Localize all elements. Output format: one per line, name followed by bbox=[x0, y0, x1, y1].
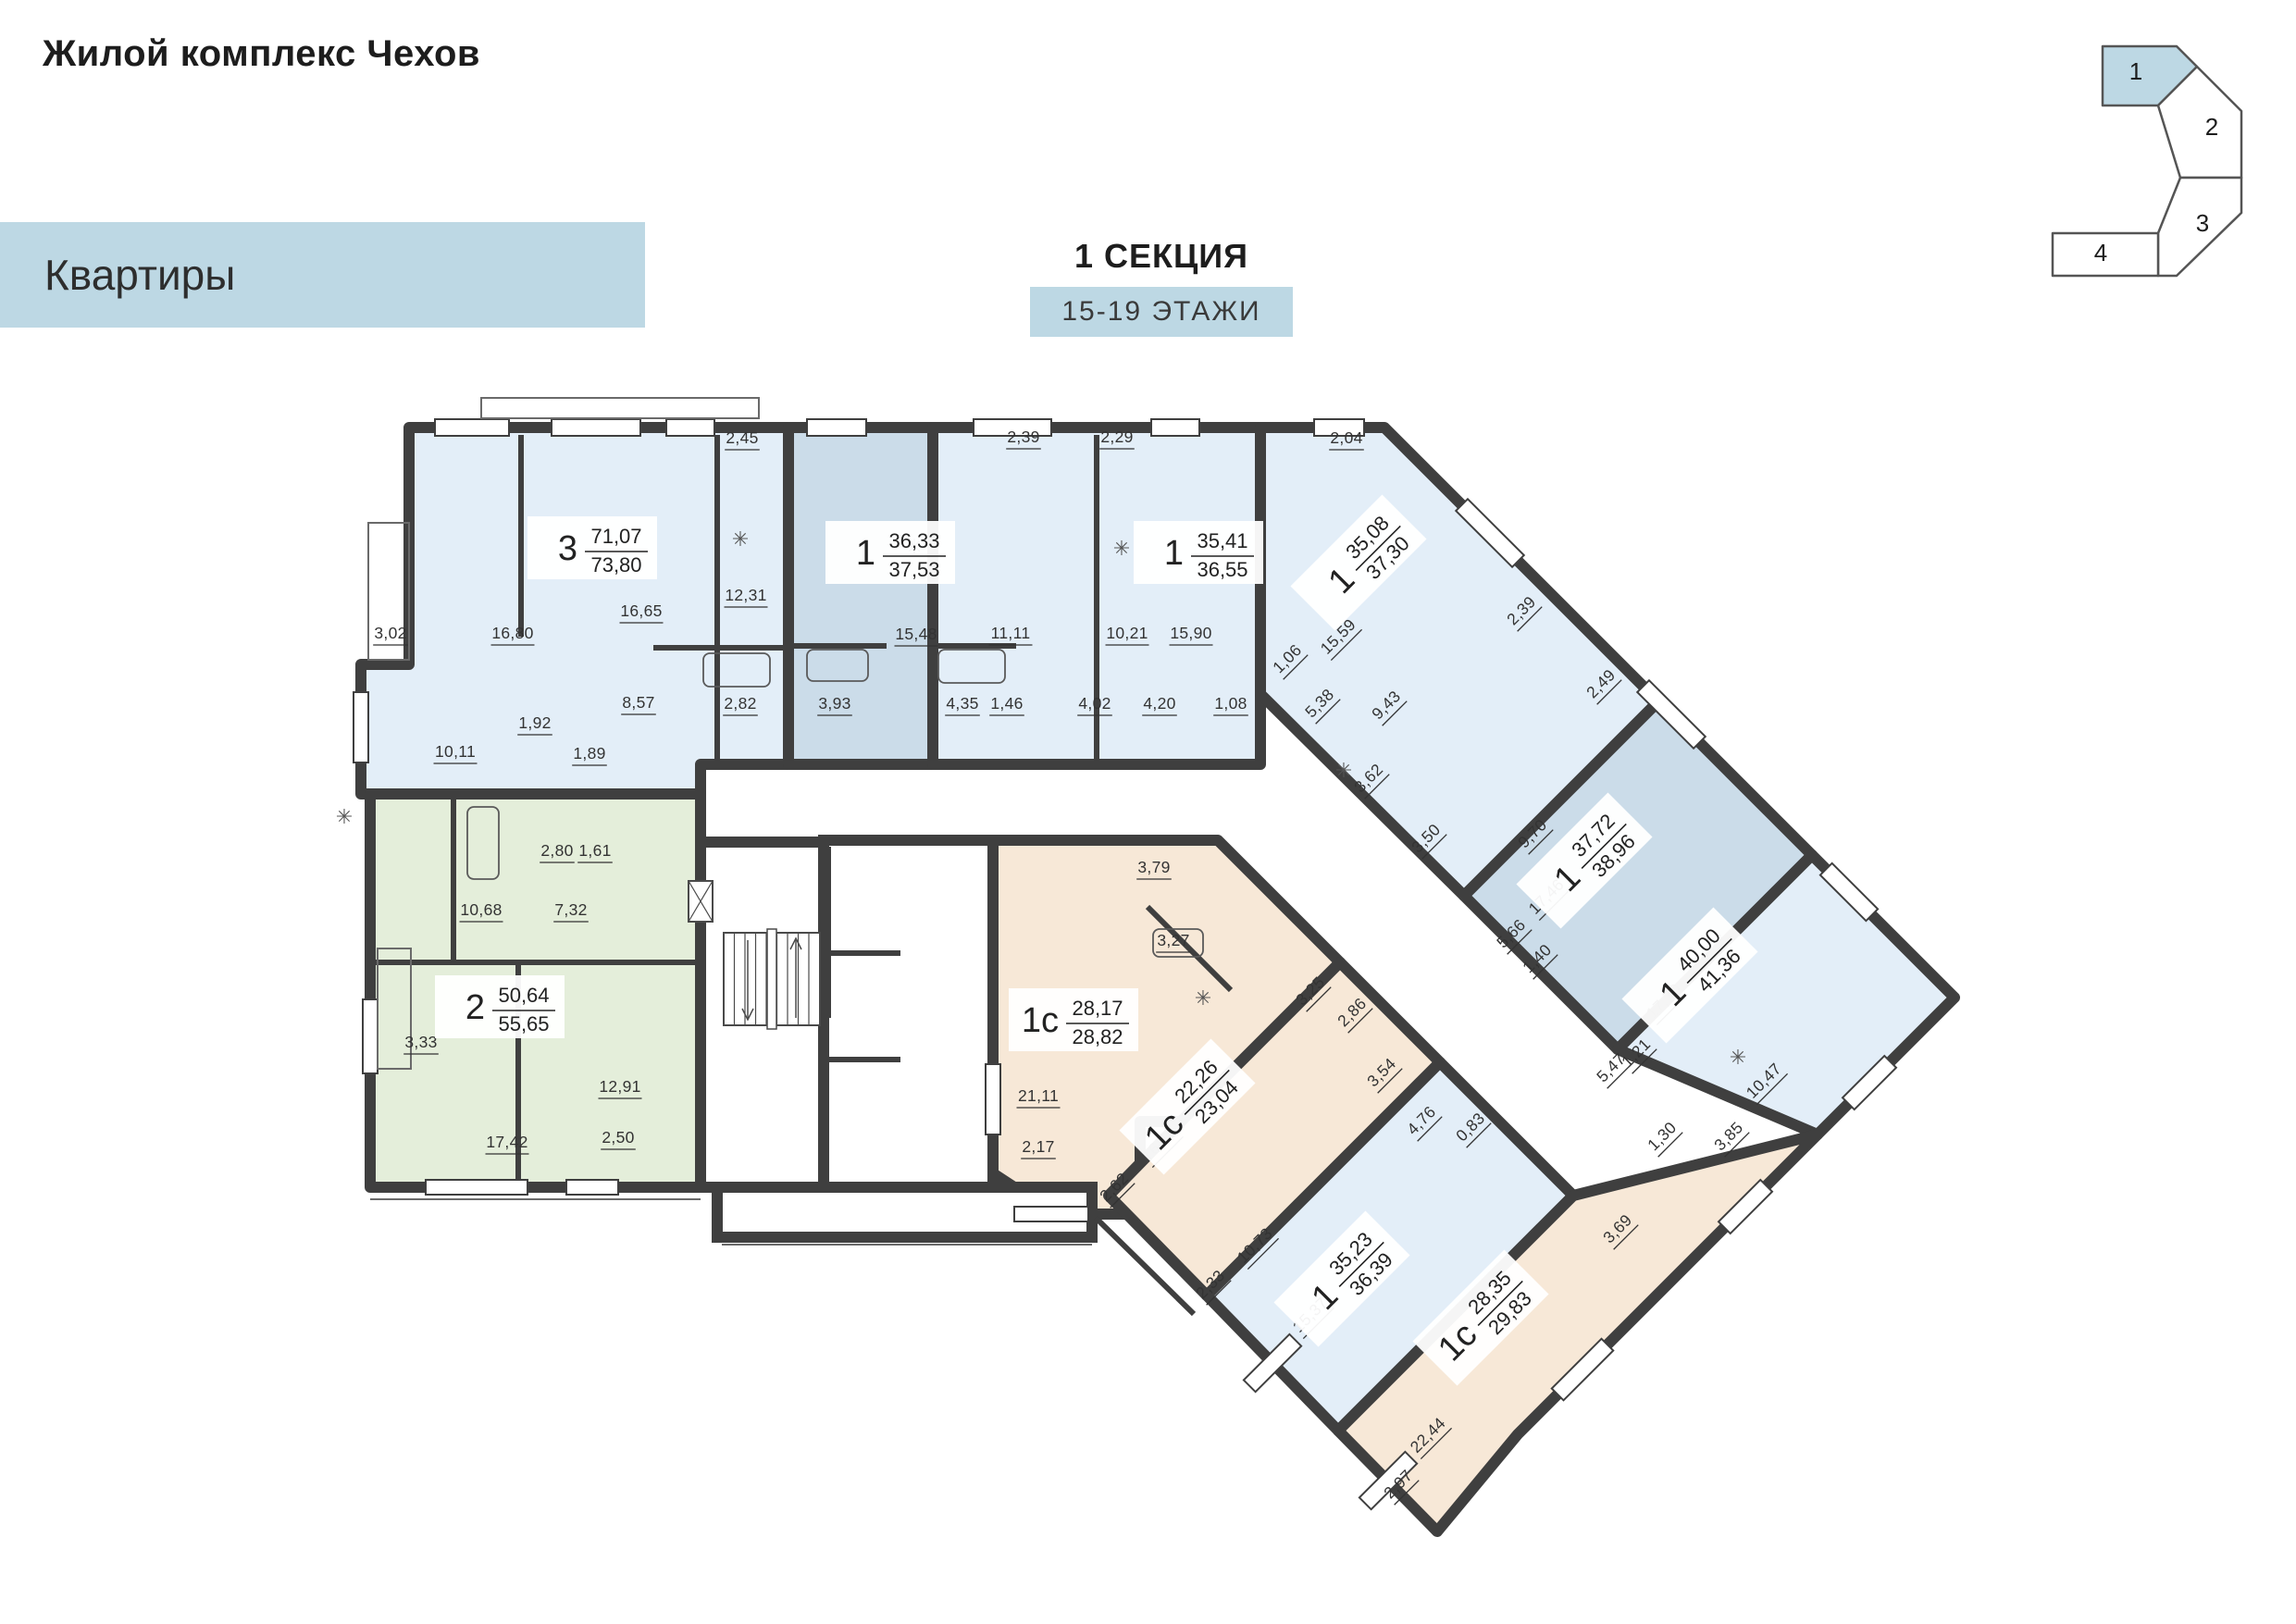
stair-divider bbox=[767, 929, 776, 1029]
dimension-label: 3,27 bbox=[1156, 931, 1191, 952]
svg-text:12,91: 12,91 bbox=[599, 1077, 640, 1096]
dimension-label: 4,02 bbox=[1077, 694, 1112, 715]
dimension-label: 2,45 bbox=[725, 428, 760, 450]
svg-text:2,82: 2,82 bbox=[724, 694, 756, 713]
svg-text:3,02: 3,02 bbox=[374, 624, 406, 642]
dimension-label: 3,33 bbox=[403, 1033, 439, 1054]
svg-text:10,11: 10,11 bbox=[435, 742, 476, 761]
dimension-label: 1,89 bbox=[572, 744, 607, 765]
apartment-area-total: 28,82 bbox=[1072, 1025, 1123, 1048]
svg-text:2,29: 2,29 bbox=[1100, 428, 1133, 446]
dimension-label: 4,20 bbox=[1142, 694, 1177, 715]
window bbox=[666, 419, 714, 436]
svg-text:10,68: 10,68 bbox=[460, 900, 502, 919]
apartment-type: 2 bbox=[465, 988, 485, 1027]
window bbox=[435, 419, 509, 436]
svg-text:2,17: 2,17 bbox=[1022, 1137, 1054, 1156]
window bbox=[426, 1180, 527, 1195]
apartment-area-living: 28,17 bbox=[1072, 997, 1123, 1020]
floor-plan-page: Жилой комплекс Чехов Квартиры 1 СЕКЦИЯ 1… bbox=[0, 0, 2296, 1624]
dimension-label: 1,46 bbox=[989, 694, 1024, 715]
svg-text:1,89: 1,89 bbox=[573, 744, 605, 762]
stove-icon: ✳ bbox=[1113, 537, 1130, 560]
apartment-3-71[interactable] bbox=[361, 428, 788, 794]
svg-text:4,35: 4,35 bbox=[946, 694, 978, 713]
dimension-label: 1,08 bbox=[1213, 694, 1248, 715]
dimension-label: 11,11 bbox=[989, 624, 1033, 645]
minimap-section-number: 1 bbox=[2129, 57, 2142, 85]
apartment-type: 1 bbox=[1164, 534, 1184, 573]
apartment-area-total: 36,55 bbox=[1197, 558, 1247, 581]
svg-text:15,48: 15,48 bbox=[895, 625, 937, 643]
svg-text:2,04: 2,04 bbox=[1330, 428, 1362, 447]
apartment-label-1-3541[interactable]: 135,4136,55 bbox=[1134, 521, 1263, 584]
dimension-label: 10,21 bbox=[1106, 624, 1149, 645]
dimension-label: 2,39 bbox=[1006, 428, 1041, 449]
svg-text:2,45: 2,45 bbox=[726, 428, 758, 447]
dimension-label: 17,42 bbox=[486, 1133, 529, 1154]
dimension-label: 2,82 bbox=[723, 694, 758, 715]
svg-text:17,42: 17,42 bbox=[486, 1133, 527, 1151]
svg-text:1,92: 1,92 bbox=[518, 713, 551, 732]
dimension-label: 8,57 bbox=[621, 693, 656, 714]
svg-text:21,11: 21,11 bbox=[1018, 1086, 1059, 1105]
svg-text:1,61: 1,61 bbox=[578, 841, 611, 860]
dimension-label: 15,48 bbox=[895, 625, 938, 646]
svg-text:1,30: 1,30 bbox=[1644, 1118, 1680, 1154]
dimension-label: 2,29 bbox=[1099, 428, 1135, 449]
svg-text:2,80: 2,80 bbox=[540, 841, 573, 860]
dimension-label: 2,04 bbox=[1329, 428, 1364, 450]
core-block bbox=[824, 840, 993, 1187]
apartment-area-total: 37,53 bbox=[888, 558, 939, 581]
dimension-label: 1,92 bbox=[517, 713, 552, 735]
stove-icon: ✳ bbox=[336, 805, 353, 828]
minimap-section-number: 3 bbox=[2196, 209, 2209, 237]
dimension-label: 2,80 bbox=[540, 841, 575, 862]
svg-text:15,90: 15,90 bbox=[1170, 624, 1211, 642]
dimension-label: 10,11 bbox=[434, 742, 478, 763]
dimension-label: 16,65 bbox=[620, 601, 664, 623]
svg-text:3,79: 3,79 bbox=[1137, 858, 1170, 876]
window bbox=[1151, 419, 1199, 436]
stove-icon: ✳ bbox=[732, 527, 749, 551]
minimap-section-number: 2 bbox=[2205, 113, 2218, 141]
svg-text:7,32: 7,32 bbox=[554, 900, 587, 919]
dimension-label: 1,30 bbox=[1643, 1117, 1682, 1157]
dimension-label: 1,61 bbox=[577, 841, 613, 862]
dimension-label: 12,31 bbox=[725, 586, 768, 607]
svg-text:1,46: 1,46 bbox=[990, 694, 1023, 713]
window bbox=[354, 692, 368, 762]
apartment-label-2-5064[interactable]: 250,6455,65 bbox=[435, 975, 565, 1038]
balcony bbox=[481, 398, 759, 418]
dimension-label: 3,93 bbox=[817, 694, 852, 715]
window bbox=[807, 419, 866, 436]
apartment-area-living: 71,07 bbox=[590, 525, 641, 548]
svg-text:1,08: 1,08 bbox=[1214, 694, 1247, 713]
apartment-type: 1 bbox=[856, 534, 875, 573]
dimension-label: 3,79 bbox=[1136, 858, 1172, 879]
stove-icon: ✳ bbox=[1335, 759, 1352, 782]
svg-text:2,50: 2,50 bbox=[602, 1128, 634, 1147]
minimap-section-number: 4 bbox=[2094, 239, 2107, 267]
svg-text:10,21: 10,21 bbox=[1106, 624, 1148, 642]
dimension-label: 3,02 bbox=[373, 624, 408, 645]
dimension-label: 2,17 bbox=[1021, 1137, 1056, 1159]
svg-text:16,65: 16,65 bbox=[620, 601, 662, 620]
window bbox=[1014, 1207, 1088, 1221]
apartment-1-3633[interactable] bbox=[788, 428, 933, 764]
window bbox=[363, 999, 378, 1073]
dimension-label: 21,11 bbox=[1017, 1086, 1061, 1108]
apartment-label-1c-2817[interactable]: 1с28,1728,82 bbox=[1009, 988, 1138, 1051]
apartment-area-total: 73,80 bbox=[590, 553, 641, 576]
apartment-type: 1с bbox=[1022, 1001, 1059, 1040]
stove-icon: ✳ bbox=[1195, 986, 1211, 1010]
dimension-label: 4,35 bbox=[945, 694, 980, 715]
dimension-label: 2,50 bbox=[601, 1128, 636, 1149]
dimension-label: 12,91 bbox=[599, 1077, 642, 1098]
window bbox=[986, 1064, 1000, 1134]
apartment-area-total: 55,65 bbox=[498, 1012, 549, 1035]
svg-text:4,02: 4,02 bbox=[1078, 694, 1111, 713]
svg-text:3,33: 3,33 bbox=[404, 1033, 437, 1051]
svg-text:12,31: 12,31 bbox=[725, 586, 766, 604]
svg-text:3,27: 3,27 bbox=[1157, 931, 1189, 949]
svg-text:11,11: 11,11 bbox=[991, 624, 1031, 642]
apartment-label-1-3633[interactable]: 136,3337,53 bbox=[825, 521, 955, 584]
svg-text:2,39: 2,39 bbox=[1007, 428, 1039, 446]
svg-text:16,80: 16,80 bbox=[491, 624, 533, 642]
dimension-label: 16,80 bbox=[491, 624, 535, 645]
stove-icon: ✳ bbox=[1730, 1046, 1746, 1069]
window bbox=[552, 419, 640, 436]
apartment-type: 3 bbox=[558, 529, 577, 568]
apartment-label-3-71[interactable]: 371,0773,80 bbox=[527, 516, 657, 579]
window bbox=[566, 1180, 618, 1195]
svg-text:4,20: 4,20 bbox=[1143, 694, 1175, 713]
apartment-area-living: 50,64 bbox=[498, 984, 549, 1007]
apartment-area-living: 36,33 bbox=[888, 529, 939, 552]
building-minimap: 1234 bbox=[2053, 46, 2241, 276]
svg-text:3,93: 3,93 bbox=[818, 694, 850, 713]
dimension-label: 7,32 bbox=[553, 900, 589, 922]
svg-text:8,57: 8,57 bbox=[622, 693, 654, 712]
apartment-area-living: 35,41 bbox=[1197, 529, 1247, 552]
dimension-label: 10,68 bbox=[460, 900, 503, 922]
dimension-label: 15,90 bbox=[1170, 624, 1213, 645]
floor-plan-svg: ✳✳✳✳✳✳✳ 2,453,0216,8016,6512,318,571,922… bbox=[0, 0, 2296, 1624]
